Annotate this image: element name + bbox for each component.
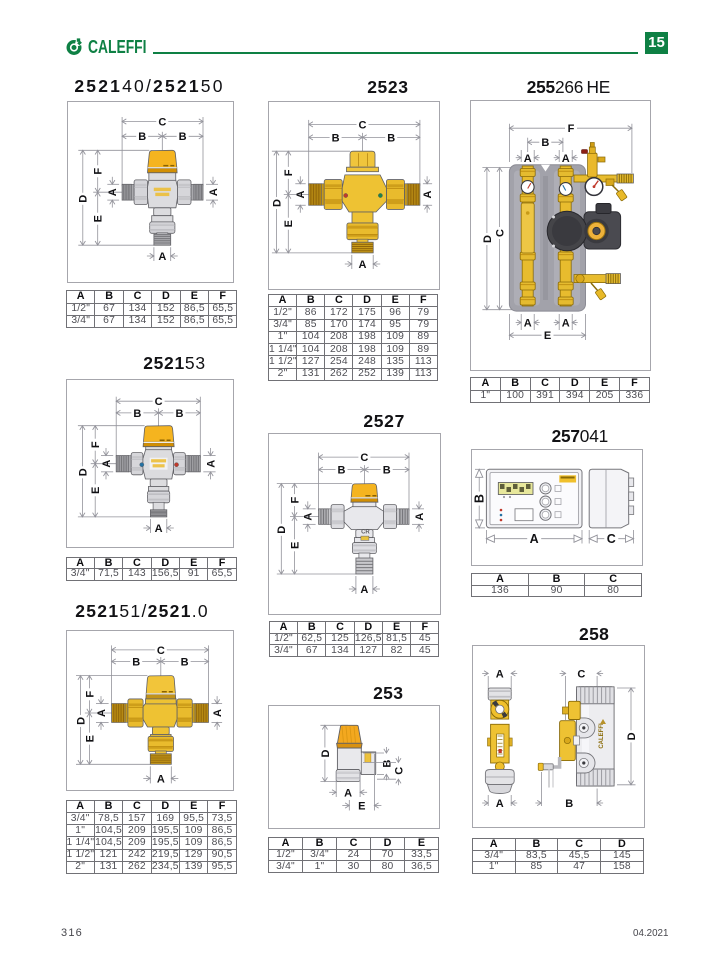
svg-text:B: B bbox=[181, 656, 189, 668]
svg-text:A: A bbox=[562, 318, 570, 330]
svg-text:B: B bbox=[179, 131, 187, 143]
svg-text:A: A bbox=[360, 584, 368, 596]
svg-text:B: B bbox=[133, 408, 141, 420]
svg-text:D: D bbox=[271, 199, 283, 207]
svg-text:C: C bbox=[155, 396, 163, 408]
svg-text:B: B bbox=[138, 131, 146, 143]
svg-text:A: A bbox=[422, 190, 434, 198]
svg-text:C: C bbox=[360, 452, 368, 464]
svg-text:D: D bbox=[276, 526, 288, 534]
svg-text:B: B bbox=[565, 798, 573, 810]
svg-text:B: B bbox=[175, 408, 183, 420]
svg-text:B: B bbox=[387, 132, 395, 144]
svg-text:A: A bbox=[344, 787, 352, 799]
svg-text:F: F bbox=[283, 169, 295, 176]
svg-text:B: B bbox=[332, 132, 340, 144]
svg-text:A: A bbox=[524, 318, 532, 330]
svg-text:A: A bbox=[496, 668, 504, 680]
svg-text:A: A bbox=[101, 460, 113, 468]
svg-text:D: D bbox=[75, 717, 87, 725]
svg-text:A: A bbox=[530, 532, 539, 546]
svg-text:C: C bbox=[607, 532, 616, 546]
svg-text:C: C bbox=[393, 767, 405, 775]
svg-text:CR: CR bbox=[361, 530, 370, 536]
svg-text:C: C bbox=[359, 119, 367, 131]
svg-text:B: B bbox=[381, 760, 393, 768]
svg-text:A: A bbox=[158, 251, 166, 263]
svg-text:B: B bbox=[473, 494, 487, 503]
svg-text:B: B bbox=[541, 137, 549, 149]
svg-text:CALEFFI: CALEFFI bbox=[88, 36, 147, 57]
svg-text:B: B bbox=[383, 465, 391, 477]
svg-text:A: A bbox=[414, 513, 426, 521]
svg-text:D: D bbox=[320, 749, 332, 757]
svg-text:A: A bbox=[524, 153, 532, 165]
svg-text:CALEFFI: CALEFFI bbox=[599, 723, 605, 749]
svg-text:A: A bbox=[107, 188, 119, 196]
svg-text:A: A bbox=[295, 190, 307, 198]
svg-text:C: C bbox=[158, 116, 166, 128]
svg-text:A: A bbox=[496, 798, 504, 810]
svg-text:E: E bbox=[544, 330, 551, 342]
svg-text:D: D bbox=[626, 732, 638, 740]
svg-text:E: E bbox=[84, 735, 96, 742]
svg-text:D: D bbox=[482, 235, 494, 243]
svg-text:C: C bbox=[577, 668, 585, 680]
svg-text:A: A bbox=[206, 460, 218, 468]
svg-text:B: B bbox=[338, 465, 346, 477]
svg-text:F: F bbox=[90, 441, 102, 448]
svg-text:A: A bbox=[96, 709, 108, 717]
svg-text:E: E bbox=[283, 220, 295, 227]
svg-text:B: B bbox=[132, 656, 140, 668]
svg-text:F: F bbox=[93, 168, 105, 175]
svg-text:E: E bbox=[358, 801, 365, 813]
svg-text:A: A bbox=[303, 513, 315, 521]
svg-text:C: C bbox=[157, 645, 165, 657]
svg-text:E: E bbox=[289, 542, 301, 549]
svg-text:D: D bbox=[77, 468, 89, 476]
svg-text:D: D bbox=[78, 195, 90, 203]
svg-text:A: A bbox=[212, 709, 224, 717]
svg-text:A: A bbox=[208, 188, 220, 196]
svg-text:F: F bbox=[568, 123, 575, 135]
svg-text:F: F bbox=[84, 691, 96, 698]
svg-text:A: A bbox=[157, 774, 165, 786]
svg-text:E: E bbox=[93, 215, 105, 222]
svg-text:F: F bbox=[289, 496, 301, 503]
svg-text:E: E bbox=[90, 487, 102, 494]
svg-text:A: A bbox=[155, 523, 163, 535]
svg-text:A: A bbox=[562, 153, 570, 165]
svg-text:A: A bbox=[359, 259, 367, 271]
svg-text:C: C bbox=[495, 229, 507, 237]
